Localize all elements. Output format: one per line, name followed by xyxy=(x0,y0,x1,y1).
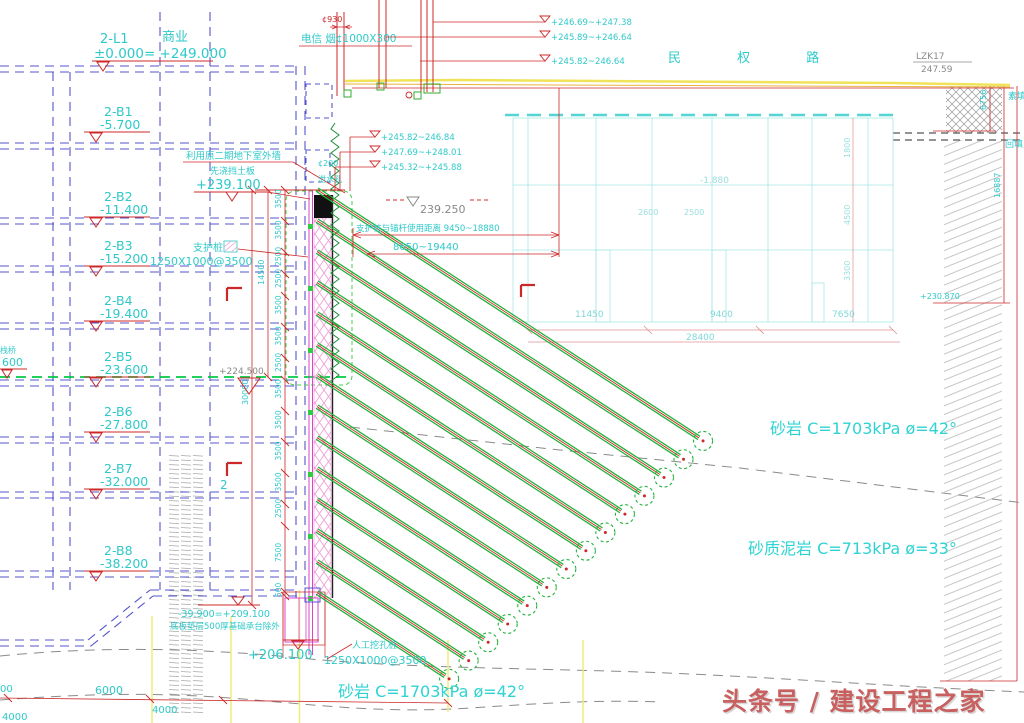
pile-distance-note: 支护桩与锚杆使用距离 9450~18880 xyxy=(356,223,500,234)
wall-seg-dim: 3500 xyxy=(274,189,283,208)
building-bottom-dim: 9400 xyxy=(710,310,733,320)
building-bottom-dim: 11450 xyxy=(575,310,604,320)
survey-point-elev: 247.59 xyxy=(921,65,953,75)
weep-hole-dia: ¢200 xyxy=(318,159,338,168)
building-use-label: 商业 xyxy=(162,30,188,45)
section-mark-2: 2 xyxy=(220,478,228,492)
bottom-pile-label: 人工挖孔桩 xyxy=(352,639,397,651)
wall-seg-dim: 3500 xyxy=(274,410,283,429)
pipe-level-value: +245.82~246.84 xyxy=(381,133,455,143)
wall-seg-dim: 3500 xyxy=(274,295,283,314)
wall-seg-dim: 3500 xyxy=(274,379,283,398)
top-level-label: ±0.000= +249.000 xyxy=(94,46,227,62)
dim-30000: 30000 xyxy=(241,380,250,405)
floor-level-label: -15.200 xyxy=(100,251,148,266)
sandstone-label: 砂岩 C=1703kPa ø=42° xyxy=(770,419,957,438)
wall-seg-dim: 7500 xyxy=(274,543,283,562)
wall-seg-dim: 2500 xyxy=(274,353,283,372)
diagonal-hatch-fill xyxy=(944,140,1002,681)
floor-level-label: -23.600 xyxy=(100,362,148,377)
slab-level: -39.900=+209.100 xyxy=(178,609,270,620)
pipe-level-value: +247.69~+248.01 xyxy=(381,148,462,158)
wall-seg-dim: 3500 xyxy=(274,220,283,239)
watermark: 头条号 / 建设工程之家 xyxy=(722,682,986,718)
fill-hatch-region: 6756 16887 素填土 回填土 +230.870 xyxy=(893,86,1024,681)
pile-toe-level: +206.100 xyxy=(248,648,313,663)
corner-dim: 4000 xyxy=(2,712,27,723)
building-total-dim: 28400 xyxy=(686,333,715,343)
building-level: -1.880 xyxy=(700,176,729,186)
fill-top-label: 素填土 xyxy=(1008,90,1024,102)
wall-seg-dim: 3500 xyxy=(274,441,283,460)
pipe-level-value: +245.82~246.64 xyxy=(551,57,625,67)
fill-label: 回填土 xyxy=(1005,138,1024,150)
fill-depth2-dim: 16887 xyxy=(993,173,1002,198)
drawing-canvas: 6756 16887 素填土 回填土 +230.870 -1.880 2600 … xyxy=(0,0,1024,723)
building-toe-level: +230.870 xyxy=(920,292,960,301)
dim-chains: 14500 30000 3500350025002500350035002500… xyxy=(241,186,289,609)
board-note: 先浇挡土板 xyxy=(210,165,255,177)
crosshatch-fill xyxy=(946,86,1002,133)
pipe-level-value: +246.69~+247.38 xyxy=(551,18,632,28)
top-grid-label: 2-L1 xyxy=(100,32,128,47)
cad-drawing: 6756 16887 素填土 回填土 +230.870 -1.880 2600 … xyxy=(0,0,1024,723)
telecom-pipe-label: 电信 烟¢1000X300 xyxy=(301,32,396,45)
dim-6000: 6000 xyxy=(95,684,123,697)
building-right-dim-0: 1800 xyxy=(843,138,852,158)
slab-note: 底板垫层500厚基础承台除外 xyxy=(170,621,280,632)
floor-level-label: -32.000 xyxy=(100,474,148,489)
dim-cut: 00 xyxy=(0,684,13,695)
wall-seg-dim: 500 xyxy=(274,582,283,597)
base-annotations: -39.900=+209.100 底板垫层500厚基础承台除外 +206.100… xyxy=(0,597,452,723)
wall-seg-dim: 2500 xyxy=(274,269,283,288)
existing-building: -1.880 2600 2500 1800 4500 3300 28400 11… xyxy=(505,115,900,343)
wall-seg-dim: 2500 xyxy=(274,247,283,266)
floor-level-label: -19.400 xyxy=(100,306,148,321)
utility-pipes: ¢930 电信 烟¢1000X300 +246.69~+247.38+245.8… xyxy=(299,0,632,191)
building-right-dim-1: 4500 xyxy=(843,205,852,225)
weep-hole-label: 泄水孔 xyxy=(318,174,342,184)
platform-value: 600 xyxy=(2,356,23,369)
floor-level-label: -27.800 xyxy=(100,417,148,432)
pipe-dia-dim: ¢930 xyxy=(322,15,342,24)
building-right-dim-2: 3300 xyxy=(843,261,852,281)
floor-level-label: -11.400 xyxy=(100,202,148,217)
pile-size: 1250X1000@3500 xyxy=(150,255,253,268)
floor-level-label: -5.700 xyxy=(100,117,140,132)
building-bottom-dim: 7650 xyxy=(832,310,855,320)
road: 民 权 路 LZK17 247.59 xyxy=(345,50,1014,88)
platform-note: 栈桥 xyxy=(0,345,16,355)
excavation-level-value: +224.500 xyxy=(219,367,264,377)
anchor-rods xyxy=(316,188,713,688)
soil-labels: 砂岩 C=1703kPa ø=42° 砂质泥岩 C=713kPa ø=33° 砂… xyxy=(338,419,957,701)
reuse-wall-note: 利用原二期地下室外墙 xyxy=(186,150,282,162)
dim-4000: 4000 xyxy=(152,705,177,716)
dim-14500: 14500 xyxy=(257,260,266,285)
building-dim-a: 2600 xyxy=(638,208,658,217)
fill-depth-dim: 6756 xyxy=(979,90,988,110)
wall-seg-dim: 2500 xyxy=(274,499,283,518)
board-level: +239.100 xyxy=(196,178,261,193)
crown-level: 239.250 xyxy=(420,203,466,216)
mudstone-label: 砂质泥岩 C=713kPa ø=33° xyxy=(748,539,957,558)
bottom-pile-size: 1250X1000@3500 xyxy=(324,654,427,667)
pipe-level-value: +245.89~+246.64 xyxy=(551,33,632,43)
wall-seg-dim: 3500 xyxy=(274,472,283,491)
sandstone-bottom-label: 砂岩 C=1703kPa ø=42° xyxy=(338,682,525,701)
road-name: 民 权 路 xyxy=(668,50,845,66)
pile-distance-range: 8650~19440 xyxy=(393,242,459,253)
floor-level-label: -38.200 xyxy=(100,556,148,571)
wall-seg-dim: 3500 xyxy=(274,326,283,345)
survey-point-id: LZK17 xyxy=(916,52,945,62)
pile-label: 支护桩 xyxy=(193,241,223,254)
building-dim-b: 2500 xyxy=(684,208,704,217)
pipe-level-value: +245.32~+245.88 xyxy=(381,163,462,173)
